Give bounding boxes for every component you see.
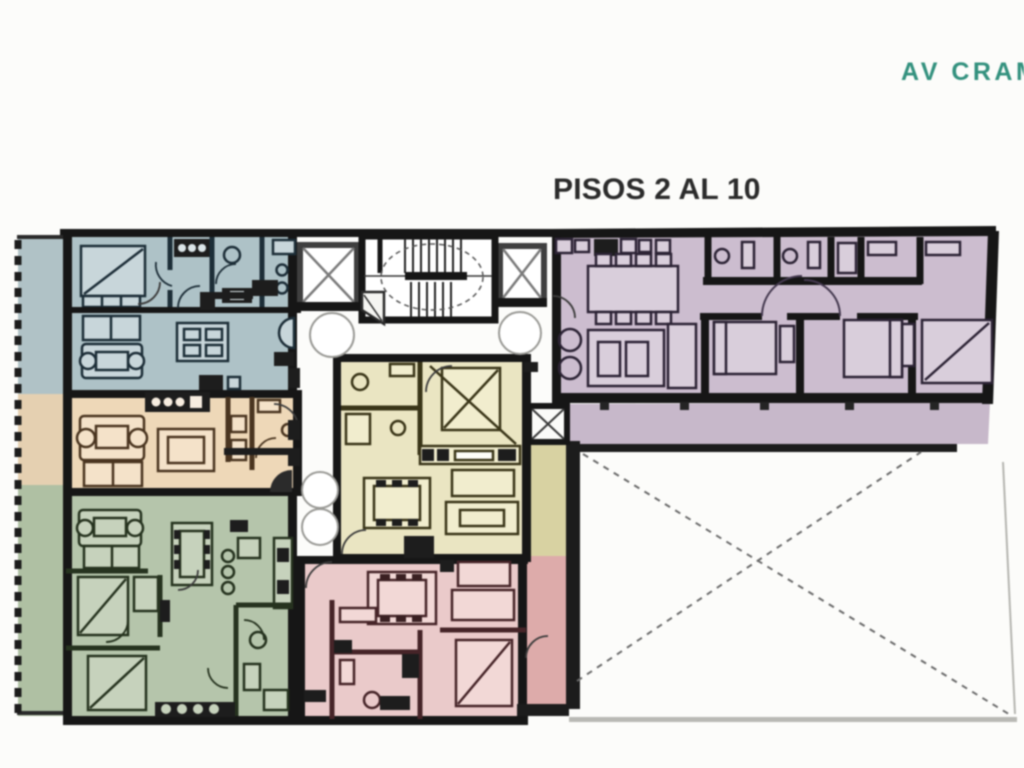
svg-text:PISOS 2 AL 10: PISOS 2 AL 10 (553, 173, 761, 206)
svg-text:AV CRAMER: AV CRAMER (901, 58, 1024, 86)
